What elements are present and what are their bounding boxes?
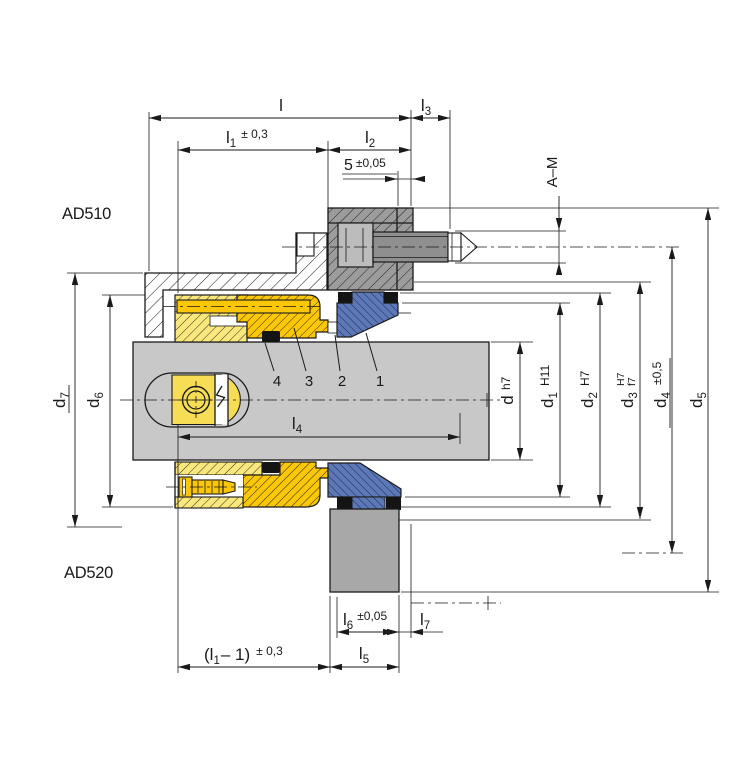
dim-label-d2: d2 H7 <box>578 370 600 408</box>
svg-text:d: d <box>498 395 517 404</box>
svg-text:H11: H11 <box>538 365 552 386</box>
dim-label-d6: d6 <box>84 392 106 408</box>
dim-label-l2: l2 <box>365 128 375 150</box>
dim-label-l5: l5 <box>359 644 369 666</box>
dim-label-d: d h7 <box>498 376 517 404</box>
dim-label-l7: l7 <box>420 610 430 632</box>
svg-text:d5: d5 <box>687 392 709 408</box>
oring-seat-left <box>338 292 352 303</box>
svg-text:d3: d3 <box>618 392 640 408</box>
dim-label-d1: d1 H11 <box>538 365 560 408</box>
oring-lower-seat-left <box>337 497 352 510</box>
svg-text:d6: d6 <box>84 392 106 408</box>
dim-label-a-m: A–M <box>544 157 561 188</box>
part-number-2: 2 <box>338 373 346 390</box>
svg-text:d2: d2 <box>578 392 600 408</box>
variant-label-ad520: AD520 <box>64 564 113 582</box>
dim-label-l6: l6±0,05 <box>343 609 387 632</box>
dim-label-l1-minus-1: (l1– 1)± 0,3 <box>204 644 283 667</box>
variant-label-ad510: AD510 <box>62 205 111 223</box>
lower-seat <box>328 463 401 510</box>
svg-text:h7: h7 <box>499 376 513 390</box>
dim-label-l: l <box>279 96 283 115</box>
dim-label-l3: l3 <box>421 96 431 118</box>
svg-text:f7: f7 <box>626 377 638 386</box>
dim-label-l1: l1± 0,3 <box>226 127 268 150</box>
dim-label-d5: d5 <box>687 392 709 408</box>
upper-seal-unit <box>163 295 337 342</box>
part-number-1: 1 <box>376 373 384 390</box>
dim-label-5: 5±0,05 <box>344 156 386 174</box>
seal-cross-section-drawing: 4 3 2 1 AD510 AD520 l l3 l1± 0,3 l2 5±0,… <box>0 0 731 768</box>
oring-seat-right <box>384 292 398 303</box>
svg-text:±0,5: ±0,5 <box>650 361 664 385</box>
screw-socket-recess <box>338 223 373 267</box>
svg-text:d1: d1 <box>538 392 560 408</box>
lower-seal-unit <box>166 462 328 508</box>
dim-label-d4: d4 ±0,5 <box>650 358 673 428</box>
part-number-4: 4 <box>273 373 281 390</box>
upper-seat <box>337 292 411 337</box>
technical-drawing-canvas: 4 3 2 1 AD510 AD520 l l3 l1± 0,3 l2 5±0,… <box>0 0 731 768</box>
oring-upper-seal <box>262 331 280 342</box>
housing-block <box>330 509 399 592</box>
svg-text:H7: H7 <box>578 370 592 386</box>
oring-lower-seat-right <box>386 497 401 510</box>
gland-notch <box>297 233 314 256</box>
dim-label-d7: d7 <box>50 385 72 413</box>
svg-text:A–M: A–M <box>544 157 561 188</box>
oring-lower-seal <box>262 462 280 473</box>
dim-label-d3: d3 H7 f7 <box>615 372 640 408</box>
part-number-3: 3 <box>305 373 313 390</box>
